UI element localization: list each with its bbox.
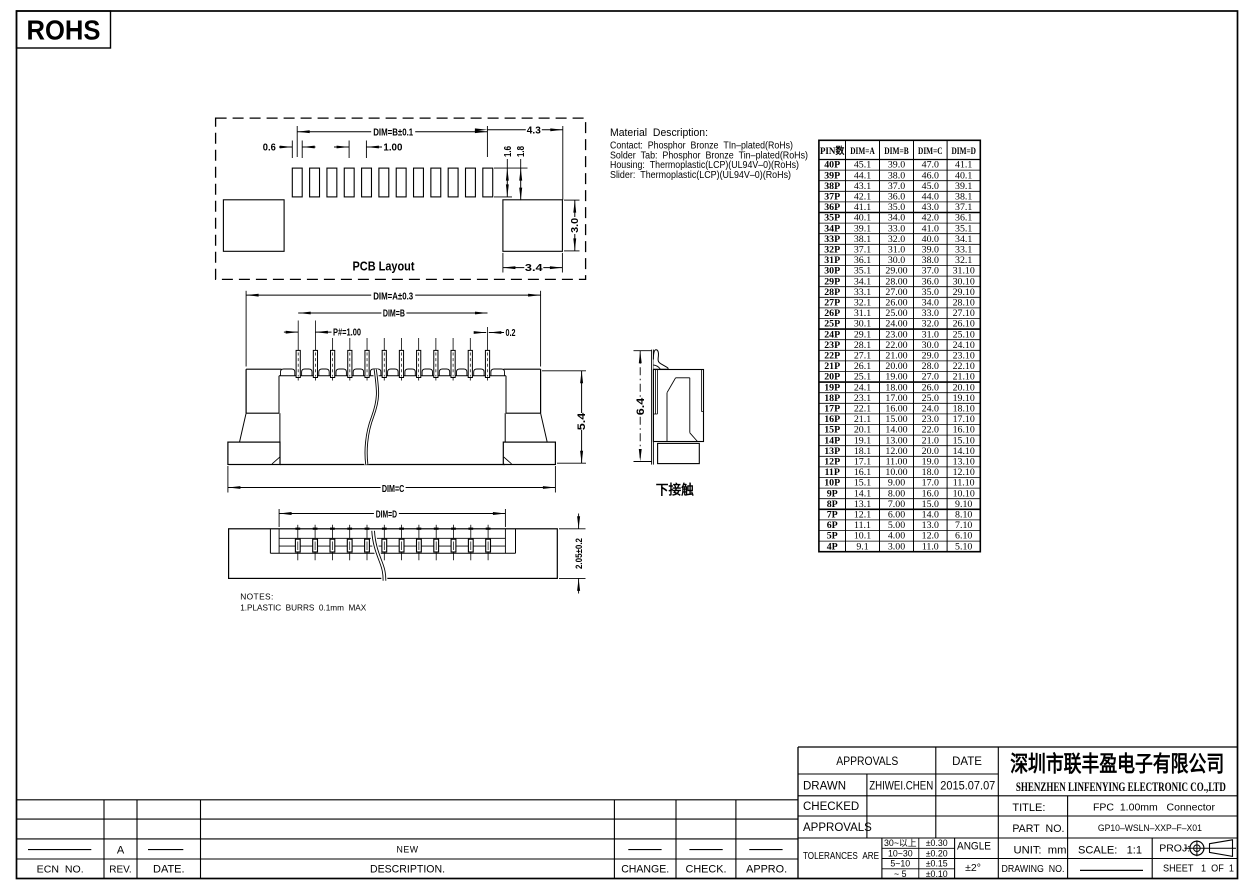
svg-text:±0.10: ±0.10 xyxy=(926,869,948,879)
svg-text:4.3: 4.3 xyxy=(527,124,541,136)
svg-text:12.1: 12.1 xyxy=(854,510,871,521)
svg-text:20P: 20P xyxy=(824,372,840,383)
svg-text:1.00: 1.00 xyxy=(383,142,402,154)
svg-text:31.0: 31.0 xyxy=(888,245,905,256)
svg-text:22P: 22P xyxy=(824,351,840,362)
svg-text:32.1: 32.1 xyxy=(854,298,871,309)
svg-text:35.0: 35.0 xyxy=(922,287,939,298)
svg-text:±2°: ±2° xyxy=(965,862,981,874)
svg-text:27P: 27P xyxy=(824,298,840,309)
svg-text:43.0: 43.0 xyxy=(922,202,939,213)
svg-text:15.10: 15.10 xyxy=(953,435,975,446)
svg-text:43.1: 43.1 xyxy=(854,181,871,192)
svg-text:24.0: 24.0 xyxy=(922,404,939,415)
svg-text:41.1: 41.1 xyxy=(955,160,972,171)
svg-text:14.10: 14.10 xyxy=(953,446,975,457)
svg-text:22.00: 22.00 xyxy=(885,340,907,351)
svg-text:31.10: 31.10 xyxy=(953,266,975,277)
svg-text:0.2: 0.2 xyxy=(506,328,516,339)
svg-text:26P: 26P xyxy=(824,308,840,319)
svg-text:16.00: 16.00 xyxy=(885,404,907,415)
svg-text:DIM=D: DIM=D xyxy=(951,146,976,157)
svg-text:44.0: 44.0 xyxy=(922,192,939,203)
svg-text:10.10: 10.10 xyxy=(953,488,975,499)
svg-text:14.0: 14.0 xyxy=(922,510,939,521)
svg-text:7P: 7P xyxy=(827,510,838,521)
svg-text:44.1: 44.1 xyxy=(854,170,871,181)
svg-text:8.00: 8.00 xyxy=(888,488,905,499)
svg-text:36.1: 36.1 xyxy=(955,213,972,224)
svg-text:18.10: 18.10 xyxy=(953,404,975,415)
svg-text:23.10: 23.10 xyxy=(953,351,975,362)
svg-text:20.00: 20.00 xyxy=(885,361,907,372)
svg-text:±0.15: ±0.15 xyxy=(926,859,948,869)
svg-text:38P: 38P xyxy=(824,181,840,192)
svg-text:13.00: 13.00 xyxy=(885,435,907,446)
svg-text:24.00: 24.00 xyxy=(885,319,907,330)
svg-text:40P: 40P xyxy=(824,160,840,171)
svg-text:深圳市联丰盈电子有限公司: 深圳市联丰盈电子有限公司 xyxy=(1010,752,1224,777)
svg-text:10P: 10P xyxy=(824,478,840,489)
svg-text:28.10: 28.10 xyxy=(953,298,975,309)
svg-text:9.10: 9.10 xyxy=(955,499,972,510)
svg-text:14.00: 14.00 xyxy=(885,425,907,436)
svg-text:36.0: 36.0 xyxy=(922,276,939,287)
svg-text:24.10: 24.10 xyxy=(953,340,975,351)
svg-text:7.00: 7.00 xyxy=(888,499,905,510)
svg-text:34.0: 34.0 xyxy=(922,298,939,309)
svg-text:16.10: 16.10 xyxy=(953,425,975,436)
svg-text:CHECK.: CHECK. xyxy=(686,864,727,876)
svg-text:37.1: 37.1 xyxy=(955,202,972,213)
svg-text:22.0: 22.0 xyxy=(922,425,939,436)
svg-text:23.1: 23.1 xyxy=(854,393,871,404)
svg-text:45.1: 45.1 xyxy=(854,160,871,171)
svg-text:38.1: 38.1 xyxy=(955,192,972,203)
svg-text:30.1: 30.1 xyxy=(854,319,871,330)
svg-text:19.10: 19.10 xyxy=(953,393,975,404)
svg-text:DRAWING NO.: DRAWING NO. xyxy=(1002,863,1065,875)
svg-text:39P: 39P xyxy=(824,170,840,181)
svg-text:PIN数: PIN数 xyxy=(820,145,845,157)
svg-text:6.10: 6.10 xyxy=(955,531,972,542)
svg-text:SCALE: 1:1: SCALE: 1:1 xyxy=(1078,845,1142,857)
svg-text:DIM=A±0.3: DIM=A±0.3 xyxy=(373,290,413,302)
svg-text:2.05±0.2: 2.05±0.2 xyxy=(574,538,585,569)
svg-text:ROHS: ROHS xyxy=(27,15,101,46)
svg-text:37.0: 37.0 xyxy=(888,181,905,192)
svg-text:GP10–WSLN–XXP–F–X01: GP10–WSLN–XXP–F–X01 xyxy=(1098,823,1202,834)
svg-text:±0.20: ±0.20 xyxy=(926,848,948,858)
svg-text:17P: 17P xyxy=(824,404,840,415)
svg-text:38.0: 38.0 xyxy=(888,170,905,181)
svg-text:2015.07.07: 2015.07.07 xyxy=(940,780,995,792)
svg-text:A: A xyxy=(117,845,125,857)
svg-text:DATE: DATE xyxy=(952,756,982,768)
svg-text:FPC 1.00mm Connector: FPC 1.00mm Connector xyxy=(1093,802,1215,814)
svg-text:27.0: 27.0 xyxy=(922,372,939,383)
svg-text:APPROVALS: APPROVALS xyxy=(803,822,872,834)
svg-text:19P: 19P xyxy=(824,382,840,393)
svg-text:CHANGE.: CHANGE. xyxy=(621,864,669,876)
svg-text:40.1: 40.1 xyxy=(854,213,871,224)
svg-text:34.1: 34.1 xyxy=(955,234,972,245)
svg-text:26.1: 26.1 xyxy=(854,361,871,372)
svg-text:16.1: 16.1 xyxy=(854,467,871,478)
svg-text:SHENZHEN LINFENYING ELECTRONIC: SHENZHEN LINFENYING ELECTRONIC CO.,LTD xyxy=(1016,780,1226,794)
svg-text:21.0: 21.0 xyxy=(922,435,939,446)
svg-text:13.10: 13.10 xyxy=(953,457,975,468)
svg-text:DIM=D: DIM=D xyxy=(376,509,398,521)
svg-text:28.00: 28.00 xyxy=(885,276,907,287)
svg-text:32.0: 32.0 xyxy=(922,319,939,330)
svg-text:28.0: 28.0 xyxy=(922,361,939,372)
svg-text:6.4: 6.4 xyxy=(635,397,647,416)
svg-text:1.PLASTIC BURRS 0.1mm MAX: 1.PLASTIC BURRS 0.1mm MAX xyxy=(240,602,366,612)
svg-text:12.0: 12.0 xyxy=(922,531,939,542)
svg-text:UNIT: mm: UNIT: mm xyxy=(1014,845,1067,857)
svg-text:28.1: 28.1 xyxy=(854,340,871,351)
svg-text:5.4: 5.4 xyxy=(576,412,588,431)
svg-text:SHEET 1 OF 1: SHEET 1 OF 1 xyxy=(1163,863,1234,875)
svg-text:TOLERANCES ARE: TOLERANCES ARE xyxy=(803,851,879,862)
svg-text:24P: 24P xyxy=(824,329,840,340)
svg-text:35.1: 35.1 xyxy=(854,266,871,277)
svg-text:13.1: 13.1 xyxy=(854,499,871,510)
svg-text:30~以上: 30~以上 xyxy=(884,838,917,848)
svg-text:29.0: 29.0 xyxy=(922,351,939,362)
svg-text:29.00: 29.00 xyxy=(885,266,907,277)
svg-text:6P: 6P xyxy=(827,520,838,531)
svg-text:25.1: 25.1 xyxy=(854,372,871,383)
svg-text:30.0: 30.0 xyxy=(888,255,905,266)
svg-text:26.0: 26.0 xyxy=(922,382,939,393)
svg-text:12P: 12P xyxy=(824,457,840,468)
svg-text:29.1: 29.1 xyxy=(854,329,871,340)
svg-text:30.10: 30.10 xyxy=(953,276,975,287)
svg-text:19.00: 19.00 xyxy=(885,372,907,383)
svg-text:NOTES:: NOTES: xyxy=(240,592,274,602)
svg-text:±0.30: ±0.30 xyxy=(926,838,948,848)
svg-text:40.0: 40.0 xyxy=(922,234,939,245)
svg-text:36.1: 36.1 xyxy=(854,255,871,266)
svg-text:9P: 9P xyxy=(827,488,838,499)
svg-text:19.1: 19.1 xyxy=(854,435,871,446)
svg-text:21.10: 21.10 xyxy=(953,372,975,383)
svg-text:16.0: 16.0 xyxy=(922,488,939,499)
svg-text:31.0: 31.0 xyxy=(922,329,939,340)
svg-text:10.1: 10.1 xyxy=(854,531,871,542)
svg-text:3.00: 3.00 xyxy=(888,541,905,552)
svg-text:3.4: 3.4 xyxy=(525,262,543,274)
svg-text:29P: 29P xyxy=(824,276,840,287)
svg-text:5.10: 5.10 xyxy=(955,541,972,552)
svg-text:10.00: 10.00 xyxy=(885,467,907,478)
svg-text:11.00: 11.00 xyxy=(886,457,908,468)
svg-text:15P: 15P xyxy=(824,425,840,436)
svg-text:34.1: 34.1 xyxy=(854,276,871,287)
svg-text:23.00: 23.00 xyxy=(885,329,907,340)
svg-text:18.1: 18.1 xyxy=(854,446,871,457)
svg-text:10~30: 10~30 xyxy=(888,848,913,858)
svg-text:21P: 21P xyxy=(824,361,840,372)
svg-text:38.1: 38.1 xyxy=(854,234,871,245)
svg-text:1.8: 1.8 xyxy=(516,146,527,157)
svg-text:32.1: 32.1 xyxy=(955,255,972,266)
svg-text:6.00: 6.00 xyxy=(888,510,905,521)
svg-text:45.0: 45.0 xyxy=(922,181,939,192)
svg-text:23P: 23P xyxy=(824,340,840,351)
svg-text:36P: 36P xyxy=(824,202,840,213)
svg-text:41.1: 41.1 xyxy=(854,202,871,213)
svg-text:APPRO.: APPRO. xyxy=(746,864,787,876)
svg-text:21.1: 21.1 xyxy=(854,414,871,425)
svg-text:26.10: 26.10 xyxy=(953,319,975,330)
svg-text:15.0: 15.0 xyxy=(922,499,939,510)
svg-text:DATE.: DATE. xyxy=(153,864,185,876)
svg-text:11.1: 11.1 xyxy=(854,520,871,531)
svg-text:1.6: 1.6 xyxy=(503,146,514,157)
svg-text:DIM=B±0.1: DIM=B±0.1 xyxy=(373,126,413,138)
svg-text:NEW: NEW xyxy=(396,845,418,855)
svg-text:PART NO.: PART NO. xyxy=(1012,823,1064,835)
svg-text:4.00: 4.00 xyxy=(888,531,905,542)
svg-text:25.10: 25.10 xyxy=(953,329,975,340)
svg-text:下接触: 下接触 xyxy=(656,482,694,498)
svg-text:35.0: 35.0 xyxy=(888,202,905,213)
svg-text:8.10: 8.10 xyxy=(955,510,972,521)
svg-text:25.00: 25.00 xyxy=(885,308,907,319)
svg-text:7.10: 7.10 xyxy=(955,520,972,531)
svg-text:28P: 28P xyxy=(824,287,840,298)
svg-text:33.0: 33.0 xyxy=(922,308,939,319)
svg-text:27.1: 27.1 xyxy=(854,351,871,362)
svg-text:32.0: 32.0 xyxy=(888,234,905,245)
svg-text:~ 5: ~ 5 xyxy=(894,869,907,879)
svg-text:P#=1.00: P#=1.00 xyxy=(333,328,361,339)
svg-text:14.1: 14.1 xyxy=(854,488,871,499)
svg-text:39.0: 39.0 xyxy=(888,160,905,171)
svg-text:15.1: 15.1 xyxy=(854,478,871,489)
svg-text:DIM=C: DIM=C xyxy=(918,146,943,157)
svg-text:33P: 33P xyxy=(824,234,840,245)
svg-text:PCB Layout: PCB Layout xyxy=(353,259,416,273)
svg-text:25.0: 25.0 xyxy=(922,393,939,404)
svg-text:31P: 31P xyxy=(824,255,840,266)
svg-text:16P: 16P xyxy=(824,414,840,425)
svg-text:21.00: 21.00 xyxy=(885,351,907,362)
svg-text:17.1: 17.1 xyxy=(854,457,871,468)
svg-text:CHECKED: CHECKED xyxy=(803,801,859,813)
svg-text:17.10: 17.10 xyxy=(953,414,975,425)
svg-text:14P: 14P xyxy=(824,435,840,446)
svg-text:18.00: 18.00 xyxy=(885,382,907,393)
svg-text:26.00: 26.00 xyxy=(885,298,907,309)
svg-text:47.0: 47.0 xyxy=(922,160,939,171)
svg-text:31.1: 31.1 xyxy=(854,308,871,319)
svg-text:35P: 35P xyxy=(824,213,840,224)
svg-text:11.0: 11.0 xyxy=(922,541,939,552)
svg-text:33.1: 33.1 xyxy=(854,287,871,298)
svg-text:17.0: 17.0 xyxy=(922,478,939,489)
svg-text:Material Description:: Material Description: xyxy=(610,127,708,139)
svg-text:18P: 18P xyxy=(824,393,840,404)
svg-text:37.1: 37.1 xyxy=(854,245,871,256)
svg-text:8P: 8P xyxy=(827,499,838,510)
svg-text:39.0: 39.0 xyxy=(922,245,939,256)
svg-text:APPROVALS: APPROVALS xyxy=(836,756,898,768)
svg-text:34.0: 34.0 xyxy=(888,213,905,224)
svg-text:0.6: 0.6 xyxy=(263,142,276,154)
svg-text:32P: 32P xyxy=(824,245,840,256)
svg-text:11P: 11P xyxy=(825,467,840,478)
svg-text:29.10: 29.10 xyxy=(953,287,975,298)
svg-text:DIM=C: DIM=C xyxy=(382,483,405,495)
svg-text:4P: 4P xyxy=(827,541,838,552)
svg-text:9.00: 9.00 xyxy=(888,478,905,489)
svg-text:27.00: 27.00 xyxy=(885,287,907,298)
svg-text:5.00: 5.00 xyxy=(888,520,905,531)
svg-text:30P: 30P xyxy=(824,266,840,277)
svg-text:ANGLE: ANGLE xyxy=(957,840,991,852)
svg-text:22.1: 22.1 xyxy=(854,404,871,415)
svg-text:38.0: 38.0 xyxy=(922,255,939,266)
svg-text:34P: 34P xyxy=(824,223,840,234)
svg-text:9.1: 9.1 xyxy=(856,541,868,552)
svg-text:19.0: 19.0 xyxy=(922,457,939,468)
svg-text:35.1: 35.1 xyxy=(955,223,972,234)
svg-text:46.0: 46.0 xyxy=(922,170,939,181)
svg-text:5~10: 5~10 xyxy=(890,859,910,869)
svg-text:TITLE:: TITLE: xyxy=(1012,802,1045,814)
svg-text:17.00: 17.00 xyxy=(885,393,907,404)
svg-text:12.10: 12.10 xyxy=(953,467,975,478)
svg-text:25P: 25P xyxy=(824,319,840,330)
svg-text:DIM=B: DIM=B xyxy=(884,146,909,157)
svg-text:41.0: 41.0 xyxy=(922,223,939,234)
svg-text:Slider: Thermoplastic(LCP)(UL: Slider: Thermoplastic(LCP)(UL94V–0)(RoHs… xyxy=(610,170,791,181)
svg-text:DRAWN: DRAWN xyxy=(803,780,846,792)
svg-text:11.10: 11.10 xyxy=(953,478,975,489)
svg-text:40.1: 40.1 xyxy=(955,170,972,181)
svg-text:20.10: 20.10 xyxy=(953,382,975,393)
svg-text:39.1: 39.1 xyxy=(955,181,972,192)
svg-text:24.1: 24.1 xyxy=(854,382,871,393)
svg-text:ZHIWEI.CHEN: ZHIWEI.CHEN xyxy=(869,780,933,792)
svg-text:DESCRIPTION.: DESCRIPTION. xyxy=(370,864,445,876)
svg-text:18.0: 18.0 xyxy=(922,467,939,478)
svg-text:DIM=B: DIM=B xyxy=(383,308,405,320)
svg-text:27.10: 27.10 xyxy=(953,308,975,319)
svg-text:20.1: 20.1 xyxy=(854,425,871,436)
svg-text:42.0: 42.0 xyxy=(922,213,939,224)
svg-text:20.0: 20.0 xyxy=(922,446,939,457)
svg-text:33.0: 33.0 xyxy=(888,223,905,234)
svg-text:ECN NO.: ECN NO. xyxy=(37,865,84,876)
svg-text:15.00: 15.00 xyxy=(885,414,907,425)
svg-text:12.00: 12.00 xyxy=(885,446,907,457)
svg-text:22.10: 22.10 xyxy=(953,361,975,372)
svg-text:13P: 13P xyxy=(824,446,840,457)
svg-text:42.1: 42.1 xyxy=(854,192,871,203)
svg-text:13.0: 13.0 xyxy=(922,520,939,531)
svg-text:DIM=A: DIM=A xyxy=(850,146,875,157)
svg-text:3.0: 3.0 xyxy=(570,217,581,232)
svg-text:23.0: 23.0 xyxy=(922,414,939,425)
svg-text:37P: 37P xyxy=(824,192,840,203)
svg-text:37.0: 37.0 xyxy=(922,266,939,277)
svg-text:REV.: REV. xyxy=(109,865,131,876)
svg-text:39.1: 39.1 xyxy=(854,223,871,234)
svg-text:36.0: 36.0 xyxy=(888,192,905,203)
svg-text:33.1: 33.1 xyxy=(955,245,972,256)
svg-text:30.0: 30.0 xyxy=(922,340,939,351)
svg-text:5P: 5P xyxy=(827,531,838,542)
